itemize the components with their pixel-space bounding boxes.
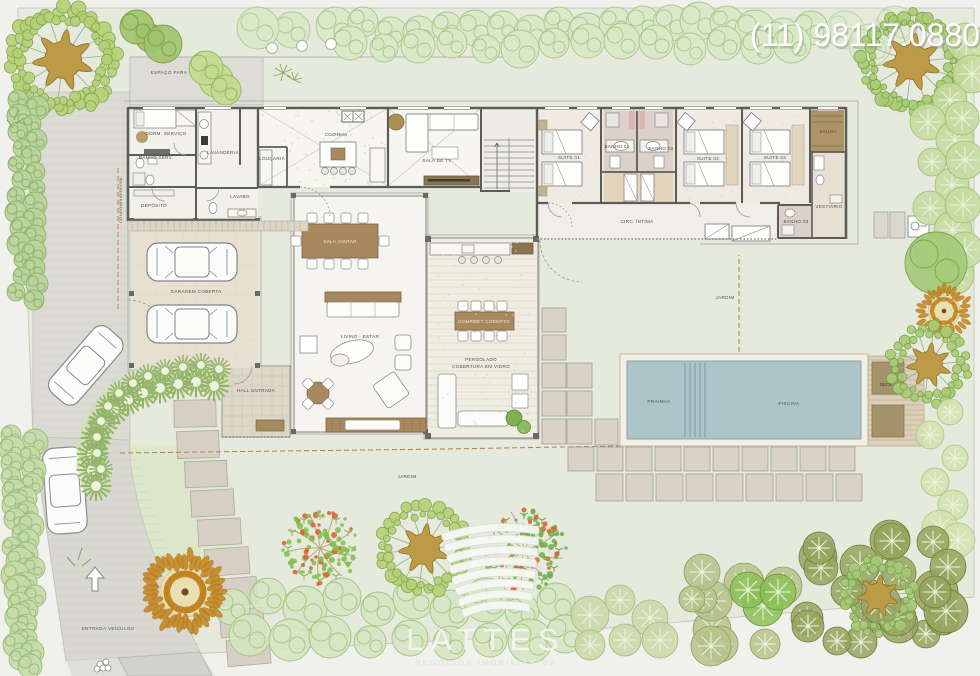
svg-text:COZINHA: COZINHA xyxy=(325,132,348,137)
svg-text:JARDIM: JARDIM xyxy=(716,295,735,300)
svg-text:HALL ENTRADA: HALL ENTRADA xyxy=(237,388,276,393)
svg-text:BANHO 03: BANHO 03 xyxy=(783,219,808,224)
svg-text:BANHO 01: BANHO 01 xyxy=(604,144,629,149)
svg-text:JARDIM: JARDIM xyxy=(398,474,417,479)
svg-text:LOUÇARIA: LOUÇARIA xyxy=(259,156,286,161)
svg-text:PERGOLADO: PERGOLADO xyxy=(465,357,497,362)
svg-text:CONDOMÍNIO/DIVISA: CONDOMÍNIO/DIVISA xyxy=(118,177,123,223)
svg-text:NEGÓCIOS IMOBILIÁRIOS: NEGÓCIOS IMOBILIÁRIOS xyxy=(415,658,557,667)
svg-text:LATTES: LATTES xyxy=(406,622,566,657)
svg-text:VESTIÁRIO: VESTIÁRIO xyxy=(815,203,842,209)
svg-text:SUITE 03: SUITE 03 xyxy=(764,155,786,160)
svg-text:LAVABO: LAVABO xyxy=(230,194,250,199)
svg-text:PISCINA: PISCINA xyxy=(778,401,800,406)
svg-text:CIRC. ÍNTIMA: CIRC. ÍNTIMA xyxy=(621,218,655,224)
svg-text:LIVING - ESTAR: LIVING - ESTAR xyxy=(341,334,380,339)
svg-text:SALA DE TV: SALA DE TV xyxy=(422,158,452,163)
svg-text:COBERTURA EM VIDRO: COBERTURA EM VIDRO xyxy=(452,364,510,369)
svg-text:PRAINHA: PRAINHA xyxy=(647,399,671,404)
svg-text:SUITE 02: SUITE 02 xyxy=(697,156,719,161)
svg-text:DORM. SERVIÇO: DORM. SERVIÇO xyxy=(145,131,186,136)
svg-text:DEPÓSITO: DEPÓSITO xyxy=(141,202,167,208)
svg-text:SALA JANTAR: SALA JANTAR xyxy=(323,239,357,244)
svg-text:GOURMET COBERTO: GOURMET COBERTO xyxy=(458,319,510,324)
svg-text:SAUNA: SAUNA xyxy=(819,129,837,134)
svg-text:BANHO SERV.: BANHO SERV. xyxy=(139,155,173,160)
svg-text:ENTRADA VEÍCULOS: ENTRADA VEÍCULOS xyxy=(82,625,135,631)
svg-text:(11) 98117.0880: (11) 98117.0880 xyxy=(750,17,980,53)
svg-text:GARAGEM COBERTA: GARAGEM COBERTA xyxy=(170,289,222,294)
svg-text:SUITE 01: SUITE 01 xyxy=(558,155,580,160)
svg-text:BANHO 02: BANHO 02 xyxy=(648,146,673,151)
svg-text:LAVANDERIA: LAVANDERIA xyxy=(207,150,239,155)
